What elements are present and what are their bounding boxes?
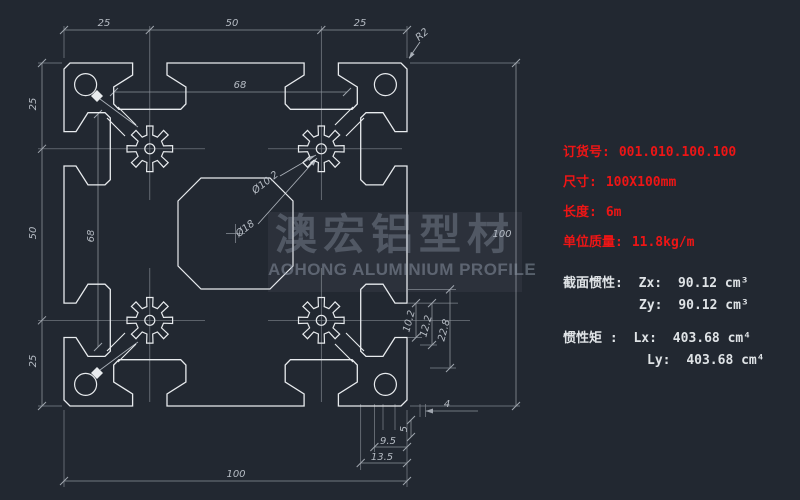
spec-order-no-label: 订货号:	[563, 145, 610, 160]
spec-length: 长度:6m	[563, 201, 736, 220]
arrow-r2	[409, 52, 415, 59]
corner-hole-bottom-left	[75, 373, 97, 395]
spec-size: 尺寸:100X100mm	[563, 171, 736, 190]
section-inertia-label: 截面惯性:	[563, 276, 623, 291]
dim-inner-width: 68	[234, 80, 247, 91]
moment-lx-row: 惯性矩 : Lx: 403.68 cm⁴	[563, 327, 765, 346]
moment-ly-row: Ly: 403.68 cm⁴	[647, 353, 765, 368]
lx-label: Lx:	[633, 331, 656, 346]
section-properties: 截面惯性: Zx: 90.12 cm³ Zy: 90.12 cm³ 惯性矩 : …	[563, 272, 765, 375]
leader-lines	[100, 42, 420, 370]
dim-slot-bottom-2: 9.5	[380, 436, 396, 447]
lx-value: 403.68 cm⁴	[673, 331, 751, 346]
dim-top-middle: 50	[226, 18, 239, 29]
dim-slot-bottom-3: 5	[399, 426, 410, 432]
section-inertia-zx-row: 截面惯性: Zx: 90.12 cm³	[563, 272, 765, 291]
dim-corner-fillet: R2	[414, 27, 431, 44]
dim-slot-bottom-1: 13.5	[371, 452, 393, 463]
section-inertia-zy-row: Zy: 90.12 cm³	[639, 298, 765, 313]
ly-label: Ly:	[647, 353, 670, 368]
dimension-ticks	[38, 26, 520, 485]
zy-value: 90.12 cm³	[678, 298, 748, 313]
moment-label: 惯性矩 :	[563, 331, 618, 346]
dim-bottom-overall: 100	[226, 469, 245, 480]
corner-hole-top-left	[75, 74, 97, 96]
dim-bore-small: Ø10.2	[249, 169, 281, 198]
zx-value: 90.12 cm³	[678, 276, 748, 291]
arrow-dim4	[426, 409, 434, 414]
corner-hole-top-right	[374, 74, 396, 96]
spec-length-label: 长度:	[563, 205, 597, 220]
spec-size-value: 100X100mm	[606, 175, 676, 190]
spec-unit-weight: 单位质量:11.8kg/m	[563, 231, 736, 250]
dim-slot-right-1: 10.2	[401, 309, 417, 333]
spec-unit-weight-label: 单位质量:	[563, 235, 623, 250]
dim-left-bottom: 25	[28, 355, 39, 368]
dim-inner-height: 68	[86, 230, 97, 243]
dim-bore-large: Ø18	[233, 218, 257, 241]
spec-size-label: 尺寸:	[563, 175, 597, 190]
spec-unit-weight-value: 11.8kg/m	[632, 235, 695, 250]
spec-order-no: 订货号:001.010.100.100	[563, 141, 736, 160]
spec-order-no-value: 001.010.100.100	[619, 145, 736, 160]
dim-slot-bottom-4: 4	[444, 399, 450, 410]
zy-label: Zy:	[639, 298, 662, 313]
order-specs: 订货号:001.010.100.100 尺寸:100X100mm 长度:6m 单…	[563, 141, 736, 261]
zx-label: Zx:	[639, 276, 662, 291]
ly-value: 403.68 cm⁴	[686, 353, 764, 368]
dim-top-left: 25	[98, 18, 111, 29]
dim-top-right: 25	[354, 18, 367, 29]
dim-right-overall: 100	[492, 229, 511, 240]
cad-screenshot: { "watermark": { "cn": "澳宏铝型材", "en": "A…	[0, 0, 800, 500]
dim-left-middle: 50	[28, 227, 39, 240]
dim-left-top: 25	[28, 98, 39, 111]
spec-length-value: 6m	[606, 205, 622, 220]
corner-hole-bottom-right	[374, 373, 396, 395]
